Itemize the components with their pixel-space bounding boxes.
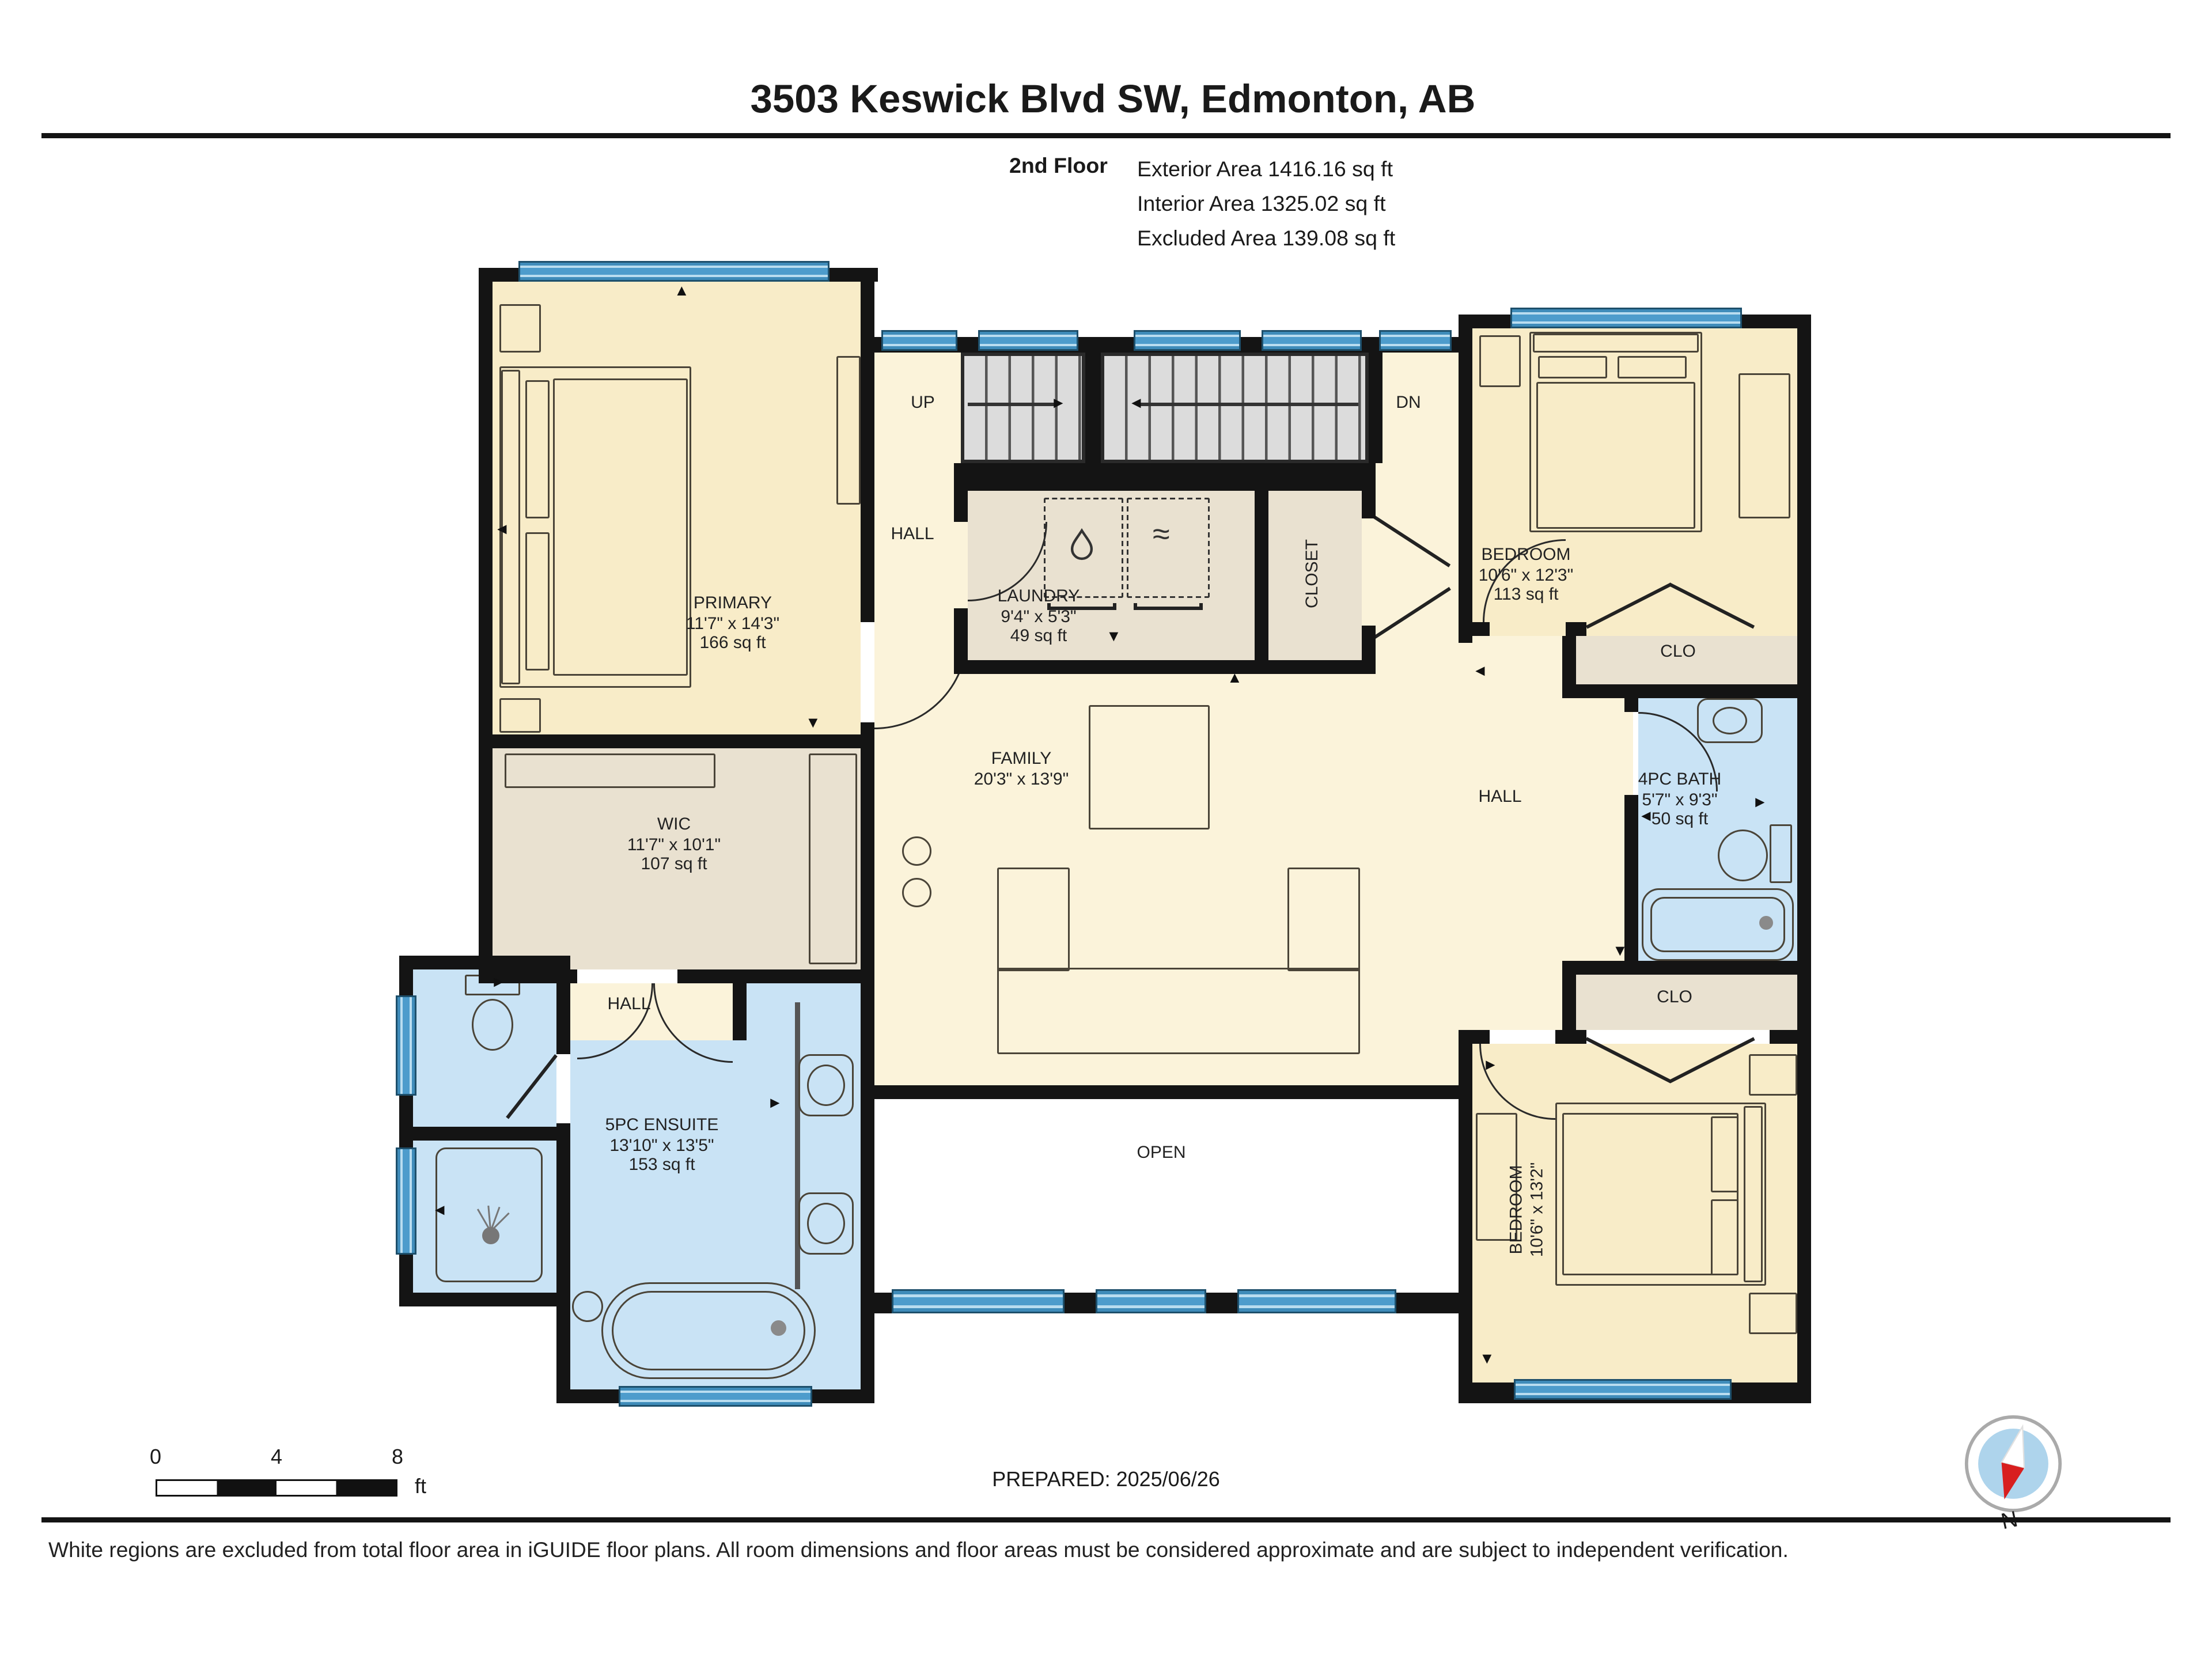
window (1262, 330, 1362, 351)
window (978, 330, 1078, 351)
scale-tick-4: 4 (271, 1445, 282, 1469)
stool (902, 878, 931, 907)
room-dims: 10'6" x 12'3" (1479, 566, 1574, 586)
door-swing-left-icon: ◄ (1472, 664, 1488, 679)
dryer: ≈ (1127, 498, 1210, 598)
nightstand (499, 304, 541, 353)
wall (1369, 353, 1382, 463)
nightstand (1479, 335, 1521, 387)
bed-blanket (1562, 1113, 1738, 1275)
wall (399, 956, 570, 969)
bathtub-drain (1759, 916, 1773, 930)
washer-droplet-icon (1066, 527, 1097, 565)
window (396, 1147, 416, 1255)
pillow (525, 532, 550, 671)
room-label-closet: CLOSET (1304, 539, 1324, 608)
room-area: 166 sq ft (686, 634, 779, 654)
wall (556, 956, 570, 1054)
prepared-date: PREPARED: 2025/06/26 (992, 1467, 1220, 1491)
room-area: 107 sq ft (627, 855, 721, 876)
sofa-base (997, 968, 1360, 1054)
window (396, 995, 416, 1096)
scale-unit: ft (415, 1474, 426, 1498)
room-dims: 9'4" x 5'3" (998, 608, 1080, 628)
room-label-hall-left: HALL (891, 525, 934, 546)
wall (1562, 684, 1811, 698)
wall (677, 969, 874, 983)
dresser (1738, 373, 1790, 518)
room-label-wic: WIC 11'7" x 10'1" 107 sq ft (627, 816, 721, 876)
door-swing-up-icon: ▲ (1227, 671, 1243, 686)
wall (1562, 961, 1811, 975)
window (518, 261, 829, 282)
wall (1624, 684, 1638, 712)
room-label-bedroom-bottom: BEDROOM 10'6" x 13'2" (1508, 1162, 1548, 1257)
room-area: 113 sq ft (1479, 586, 1574, 606)
room-dims: 11'7" x 14'3" (686, 615, 779, 635)
room-dims: 5'7" x 9'3" (1638, 791, 1722, 811)
door-swing-down-icon: ▼ (1612, 944, 1628, 959)
room-name: 5PC ENSUITE (605, 1116, 719, 1137)
toilet-bowl (472, 999, 513, 1051)
bath-sink-basin (1713, 707, 1747, 734)
toilet-tank (1770, 824, 1792, 883)
wall (861, 268, 874, 622)
stairs-up-arrow-line (968, 403, 1058, 406)
stairs-down-arrow-line (1141, 403, 1358, 406)
room-name: CLO (1660, 643, 1696, 663)
room-label-ensuite: 5PC ENSUITE 13'10" x 13'5" 153 sq ft (605, 1116, 719, 1176)
room-label-primary: PRIMARY 11'7" x 14'3" 166 sq ft (686, 594, 779, 654)
toilet-bowl (1718, 829, 1768, 881)
door-swing-right-icon: ► (491, 975, 506, 990)
stairs-up-flight (961, 353, 1085, 463)
stairs-up-arrowhead-icon: ► (1051, 396, 1066, 411)
wall (493, 734, 874, 748)
wall (1459, 622, 1490, 636)
stool (572, 1291, 603, 1322)
floor-plan-page: 3503 Keswick Blvd SW, Edmonton, AB 2nd F… (0, 0, 2212, 1659)
wall (733, 983, 747, 1040)
nightstand (1749, 1293, 1797, 1334)
window (892, 1289, 1065, 1313)
room-area: 49 sq ft (998, 627, 1080, 647)
room-name: 4PC BATH (1638, 771, 1722, 791)
room-label-clo-bottom: CLO (1657, 988, 1692, 1009)
wall (874, 1085, 1472, 1099)
scale-bar (156, 1479, 397, 1497)
room-area: 50 sq ft (1638, 810, 1722, 831)
room-dims: 13'10" x 13'5" (605, 1137, 719, 1157)
door-swing-right-icon: ► (767, 1096, 783, 1111)
closet-shelf (809, 753, 857, 964)
wall (399, 1293, 570, 1306)
nightstand (499, 698, 541, 733)
compass-icon (1963, 1414, 2063, 1514)
room-name: FAMILY (974, 750, 1069, 770)
bed-headboard (1533, 334, 1699, 353)
door-swing-up-icon: ▲ (674, 283, 690, 299)
room-name: CLOSET (1304, 539, 1324, 608)
room-label-bath: 4PC BATH 5'7" x 9'3" 50 sq ft (1638, 771, 1722, 831)
room-name: WIC (627, 816, 721, 836)
wall (479, 268, 493, 983)
bed-headboard (1744, 1106, 1763, 1282)
wall (954, 608, 968, 660)
stairs-dn-text: DN (1396, 394, 1421, 414)
window (1510, 308, 1742, 328)
room-open (874, 1099, 1459, 1293)
room-name: HALL (891, 525, 934, 546)
door-swing-right-icon: ► (1483, 1058, 1498, 1073)
room-name: BEDROOM (1479, 546, 1574, 566)
room-dims: 20'3" x 13'9" (974, 770, 1069, 790)
ensuite-sink-basin (807, 1203, 845, 1244)
wall (1797, 315, 1811, 1403)
wall (556, 1123, 570, 1403)
window (1514, 1379, 1732, 1400)
door-swing-down-icon: ▼ (1106, 629, 1122, 645)
scale-tick-0: 0 (150, 1445, 161, 1469)
room-name: HALL (1478, 788, 1521, 808)
pillow (1538, 356, 1607, 378)
room-dims: 11'7" x 10'1" (627, 836, 721, 856)
door-swing-right-icon: ► (1752, 795, 1768, 810)
wall (1770, 1030, 1811, 1044)
stairs-up-text: UP (911, 394, 935, 414)
room-name: HALL (607, 995, 650, 1016)
room-label-open: OPEN (1137, 1144, 1185, 1164)
wall (399, 1127, 570, 1141)
window (1134, 330, 1241, 351)
laundry-counter (1134, 603, 1203, 610)
wall (1566, 622, 1586, 636)
room-label-laundry: LAUNDRY 9'4" x 5'3" 49 sq ft (998, 588, 1080, 647)
ensuite-sink-basin (807, 1065, 845, 1106)
wall (954, 660, 1376, 674)
window (619, 1386, 812, 1407)
room-name: CLO (1657, 988, 1692, 1009)
scale-tick-8: 8 (392, 1445, 403, 1469)
wall (1459, 315, 1472, 643)
room-name: BEDROOM (1508, 1162, 1528, 1257)
wall (1255, 491, 1268, 660)
floor-plan: ≈ (0, 0, 2212, 1659)
sofa-right (1287, 868, 1360, 971)
stairs-up-label: UP (911, 394, 935, 414)
pillow (1618, 356, 1687, 378)
door-swing-left-icon: ◄ (494, 522, 510, 537)
wall (1085, 353, 1101, 463)
room-name: PRIMARY (686, 594, 779, 615)
stairs-dn-label: DN (1396, 394, 1421, 414)
room-label-clo-top: CLO (1660, 643, 1696, 663)
room-label-hall-small: HALL (607, 995, 650, 1016)
wall (1362, 491, 1376, 518)
wall (1562, 636, 1576, 684)
door-swing-down-icon: ▼ (1479, 1351, 1495, 1367)
stool (902, 836, 931, 866)
window (1237, 1289, 1396, 1313)
room-area: 153 sq ft (605, 1156, 719, 1176)
window (881, 330, 957, 351)
room-label-hall-right: HALL (1478, 788, 1521, 808)
window (1379, 330, 1452, 351)
wall (1472, 1030, 1490, 1044)
door-swing-left-icon: ◄ (432, 1203, 448, 1218)
wall (1362, 626, 1376, 660)
wall (1562, 975, 1576, 1030)
bed-blanket (553, 378, 688, 676)
room-label-family: FAMILY 20'3" x 13'9" (974, 750, 1069, 790)
washer (1044, 498, 1123, 598)
wall (954, 463, 1376, 491)
stairs-down-arrowhead-icon: ◄ (1128, 396, 1144, 411)
tub-drain (771, 1320, 786, 1336)
wall (1555, 1030, 1569, 1044)
wall (954, 491, 968, 522)
bed-blanket (1536, 382, 1695, 529)
room-name: LAUNDRY (998, 588, 1080, 608)
dresser (836, 356, 861, 505)
window (1096, 1289, 1206, 1313)
room-name: OPEN (1137, 1144, 1185, 1164)
sofa-left (997, 868, 1070, 971)
dryer-wave-icon: ≈ (1153, 517, 1170, 553)
pillow (525, 380, 550, 518)
room-label-bedroom-top: BEDROOM 10'6" x 12'3" 113 sq ft (1479, 546, 1574, 606)
disclaimer-text: White regions are excluded from total fl… (48, 1538, 1789, 1562)
nightstand (1749, 1054, 1797, 1096)
room-dims: 10'6" x 13'2" (1528, 1162, 1548, 1257)
table (1089, 705, 1210, 829)
footer-divider (41, 1517, 2171, 1522)
closet-shelf (505, 753, 715, 788)
door-swing-down-icon: ▼ (805, 715, 821, 731)
